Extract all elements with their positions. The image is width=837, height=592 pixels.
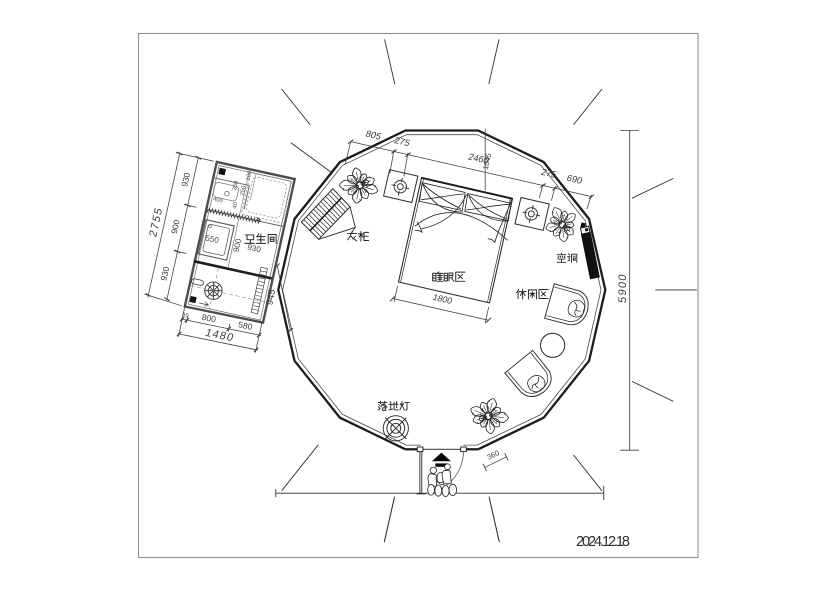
svg-text:5900: 5900 (617, 272, 629, 303)
svg-text:2024.12.18: 2024.12.18 (576, 534, 630, 550)
svg-text:90: 90 (181, 312, 189, 319)
